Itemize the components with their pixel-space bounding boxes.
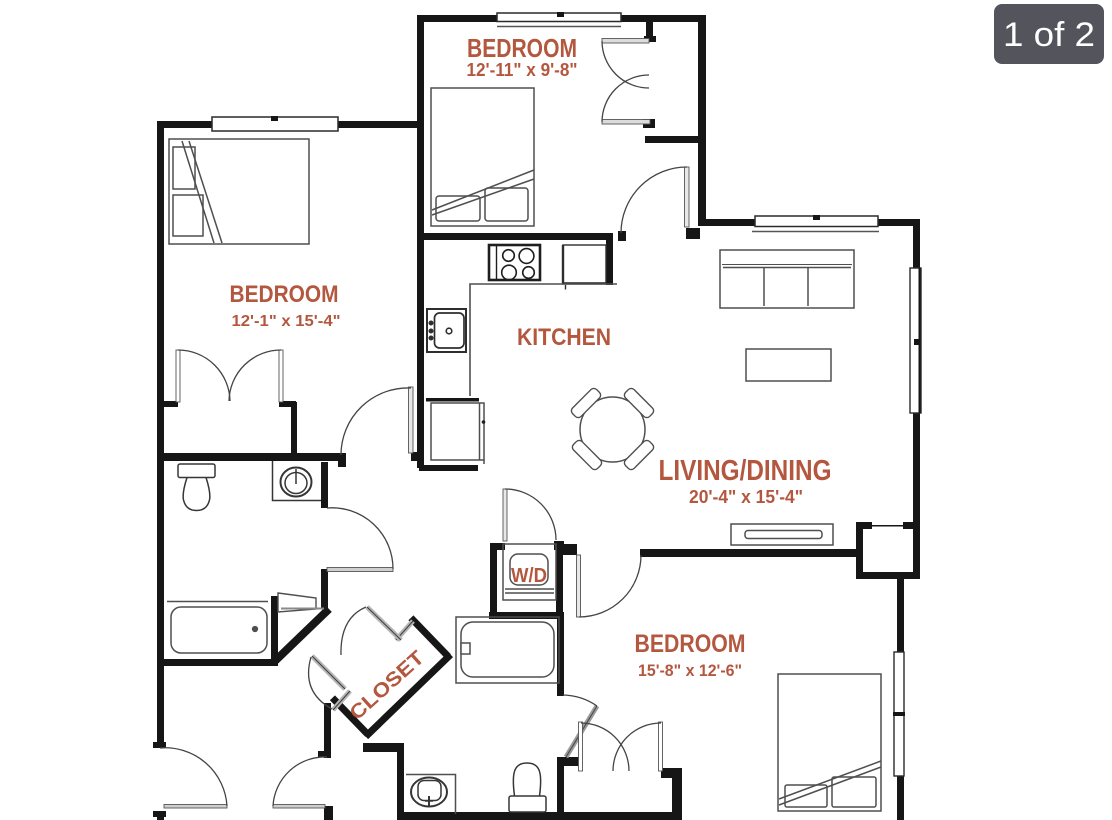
svg-text:W/D: W/D <box>511 565 547 587</box>
svg-text:12'-1" x 15'-4": 12'-1" x 15'-4" <box>232 313 341 330</box>
svg-text:BEDROOM: BEDROOM <box>230 281 339 308</box>
svg-text:15'-8" x 12'-6": 15'-8" x 12'-6" <box>638 661 742 680</box>
svg-text:LIVING/DINING: LIVING/DINING <box>659 455 832 487</box>
svg-text:KITCHEN: KITCHEN <box>517 324 611 351</box>
svg-text:20'-4" x 15'-4": 20'-4" x 15'-4" <box>689 487 803 507</box>
svg-text:12'-11" x 9'-8": 12'-11" x 9'-8" <box>467 60 578 80</box>
svg-text:1 of 2: 1 of 2 <box>1003 16 1095 54</box>
svg-text:BEDROOM: BEDROOM <box>467 33 577 63</box>
svg-text:BEDROOM: BEDROOM <box>635 630 746 658</box>
